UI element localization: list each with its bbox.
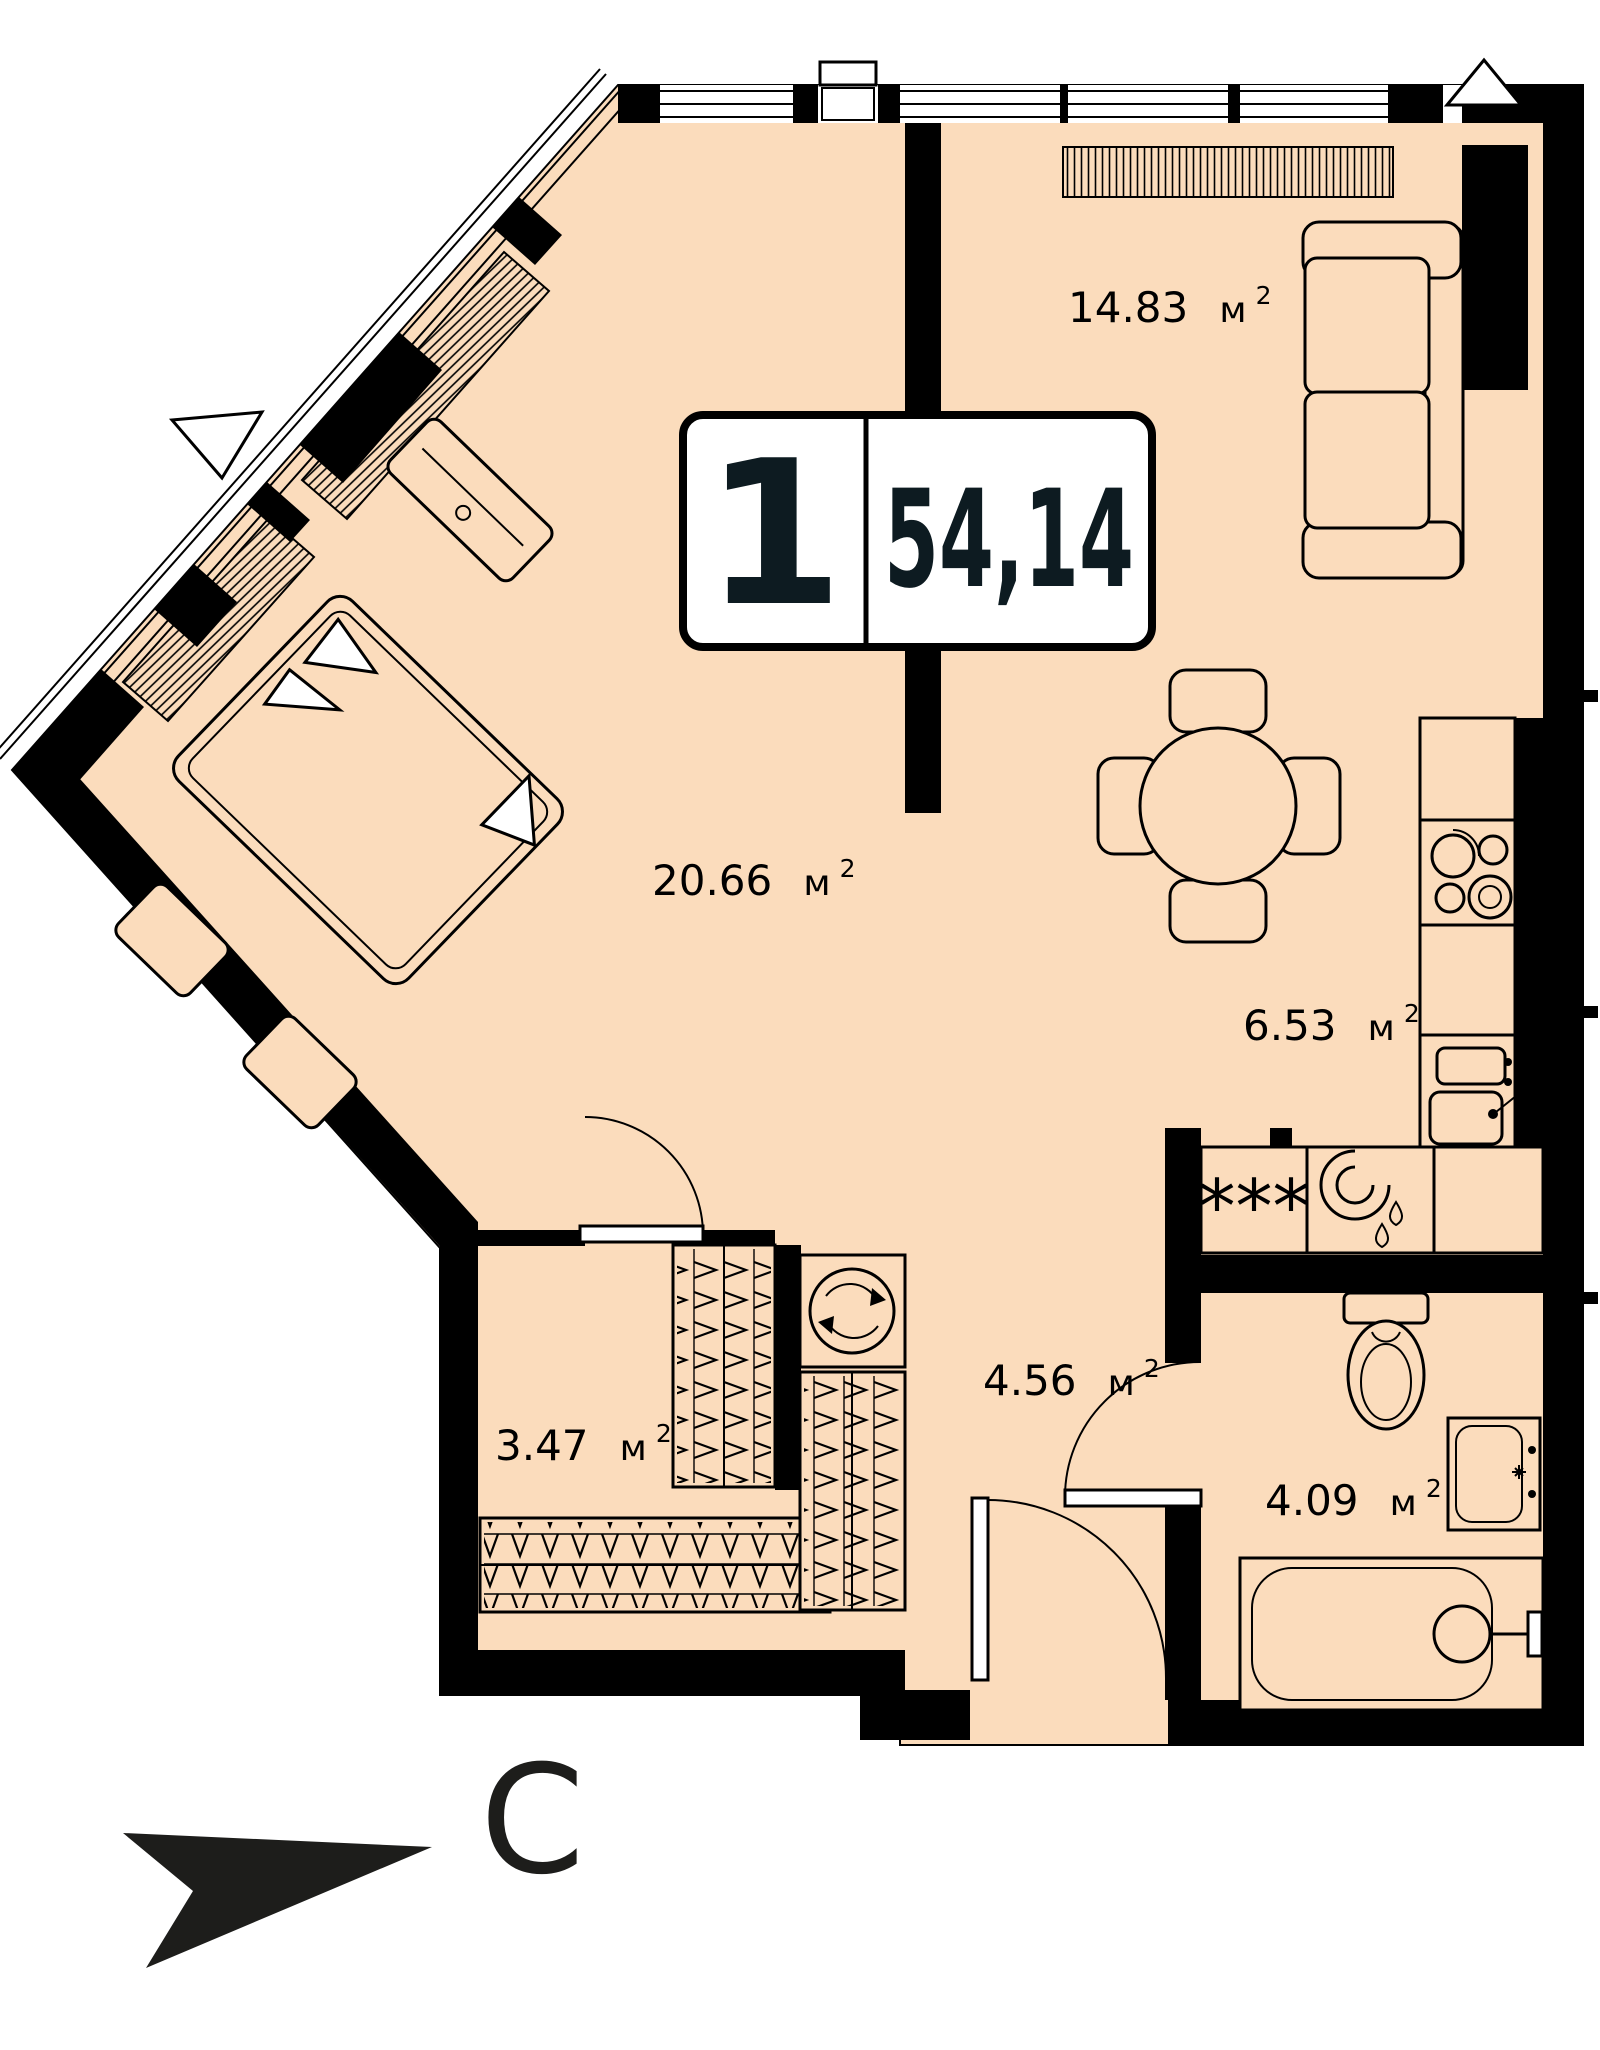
window <box>1240 85 1388 123</box>
window-vent-marker <box>172 412 262 478</box>
toilet <box>1344 1293 1428 1429</box>
apartment-badge: 1 54,14 <box>683 415 1152 651</box>
chair <box>1170 670 1266 732</box>
wardrobe-columns <box>673 1245 775 1487</box>
bathtub <box>1240 1558 1543 1710</box>
chair <box>1170 880 1266 942</box>
window <box>900 85 1228 123</box>
wardrobe-tall <box>800 1372 905 1610</box>
badge-rooms-count: 1 <box>704 418 843 651</box>
badge-total-area: 54,14 <box>884 461 1134 618</box>
floor-plan-drawing: *** <box>0 0 1600 2050</box>
table <box>1140 728 1296 884</box>
north-arrow-icon <box>123 1833 432 1968</box>
washing-machine-stars: *** <box>1199 1164 1310 1250</box>
dryer-unit <box>800 1255 905 1367</box>
cabinet <box>1434 1147 1543 1253</box>
bathroom-sink <box>1448 1418 1540 1530</box>
sofa <box>1303 222 1463 578</box>
window <box>660 85 793 123</box>
north-label: С <box>480 1734 585 1908</box>
north-compass: С <box>123 1734 585 1968</box>
section-marker <box>1447 60 1521 105</box>
balcony-door <box>818 62 878 123</box>
kitchen-counter <box>1420 718 1516 1147</box>
wardrobe-bottom <box>480 1518 830 1612</box>
laundry-niche: *** <box>1199 1147 1544 1253</box>
floor-plan-page: *** <box>0 0 1600 2050</box>
